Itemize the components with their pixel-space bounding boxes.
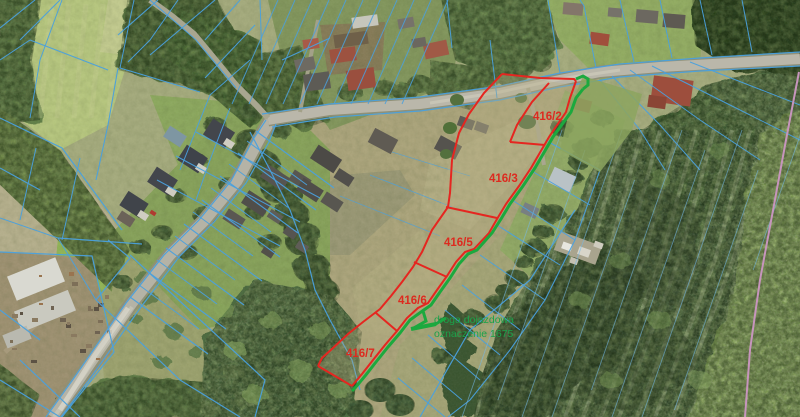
svg-text:oznaczenie 1675: oznaczenie 1675 (434, 328, 514, 340)
svg-text:416/5: 416/5 (444, 237, 473, 249)
svg-text:416/7: 416/7 (346, 348, 375, 360)
svg-text:416/2: 416/2 (533, 111, 562, 123)
svg-text:416/3: 416/3 (489, 173, 518, 185)
svg-text:droga dojazdowa: droga dojazdowa (434, 314, 514, 326)
svg-text:416/6: 416/6 (398, 295, 427, 307)
